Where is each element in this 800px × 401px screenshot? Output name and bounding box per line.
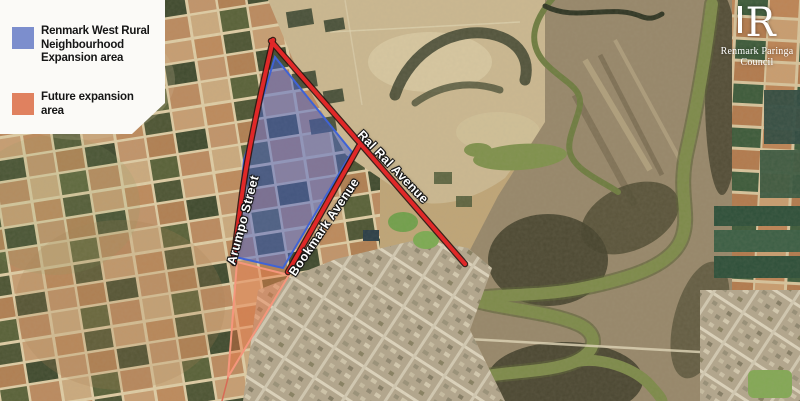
legend-item-label: Future expansion area	[41, 91, 134, 118]
council-name-line2: Council	[711, 58, 800, 69]
council-name-line1: Renmark Paringa	[711, 47, 800, 58]
legend: Renmark West Rural Neighbourhood Expansi…	[0, 0, 165, 134]
logo-bar	[738, 6, 742, 33]
expansion-area-swatch-icon	[12, 27, 34, 49]
council-logo-r-icon: R	[711, 3, 800, 47]
council-logo: R Renmark Paringa Council	[711, 3, 800, 68]
future-area-swatch-icon	[12, 93, 34, 115]
logo-letter: R	[745, 3, 775, 43]
legend-item-label: Renmark West Rural Neighbourhood Expansi…	[41, 25, 150, 66]
council-logo-name: Renmark Paringa Council	[711, 47, 800, 68]
map-figure: Renmark West Rural Neighbourhood Expansi…	[0, 0, 800, 401]
